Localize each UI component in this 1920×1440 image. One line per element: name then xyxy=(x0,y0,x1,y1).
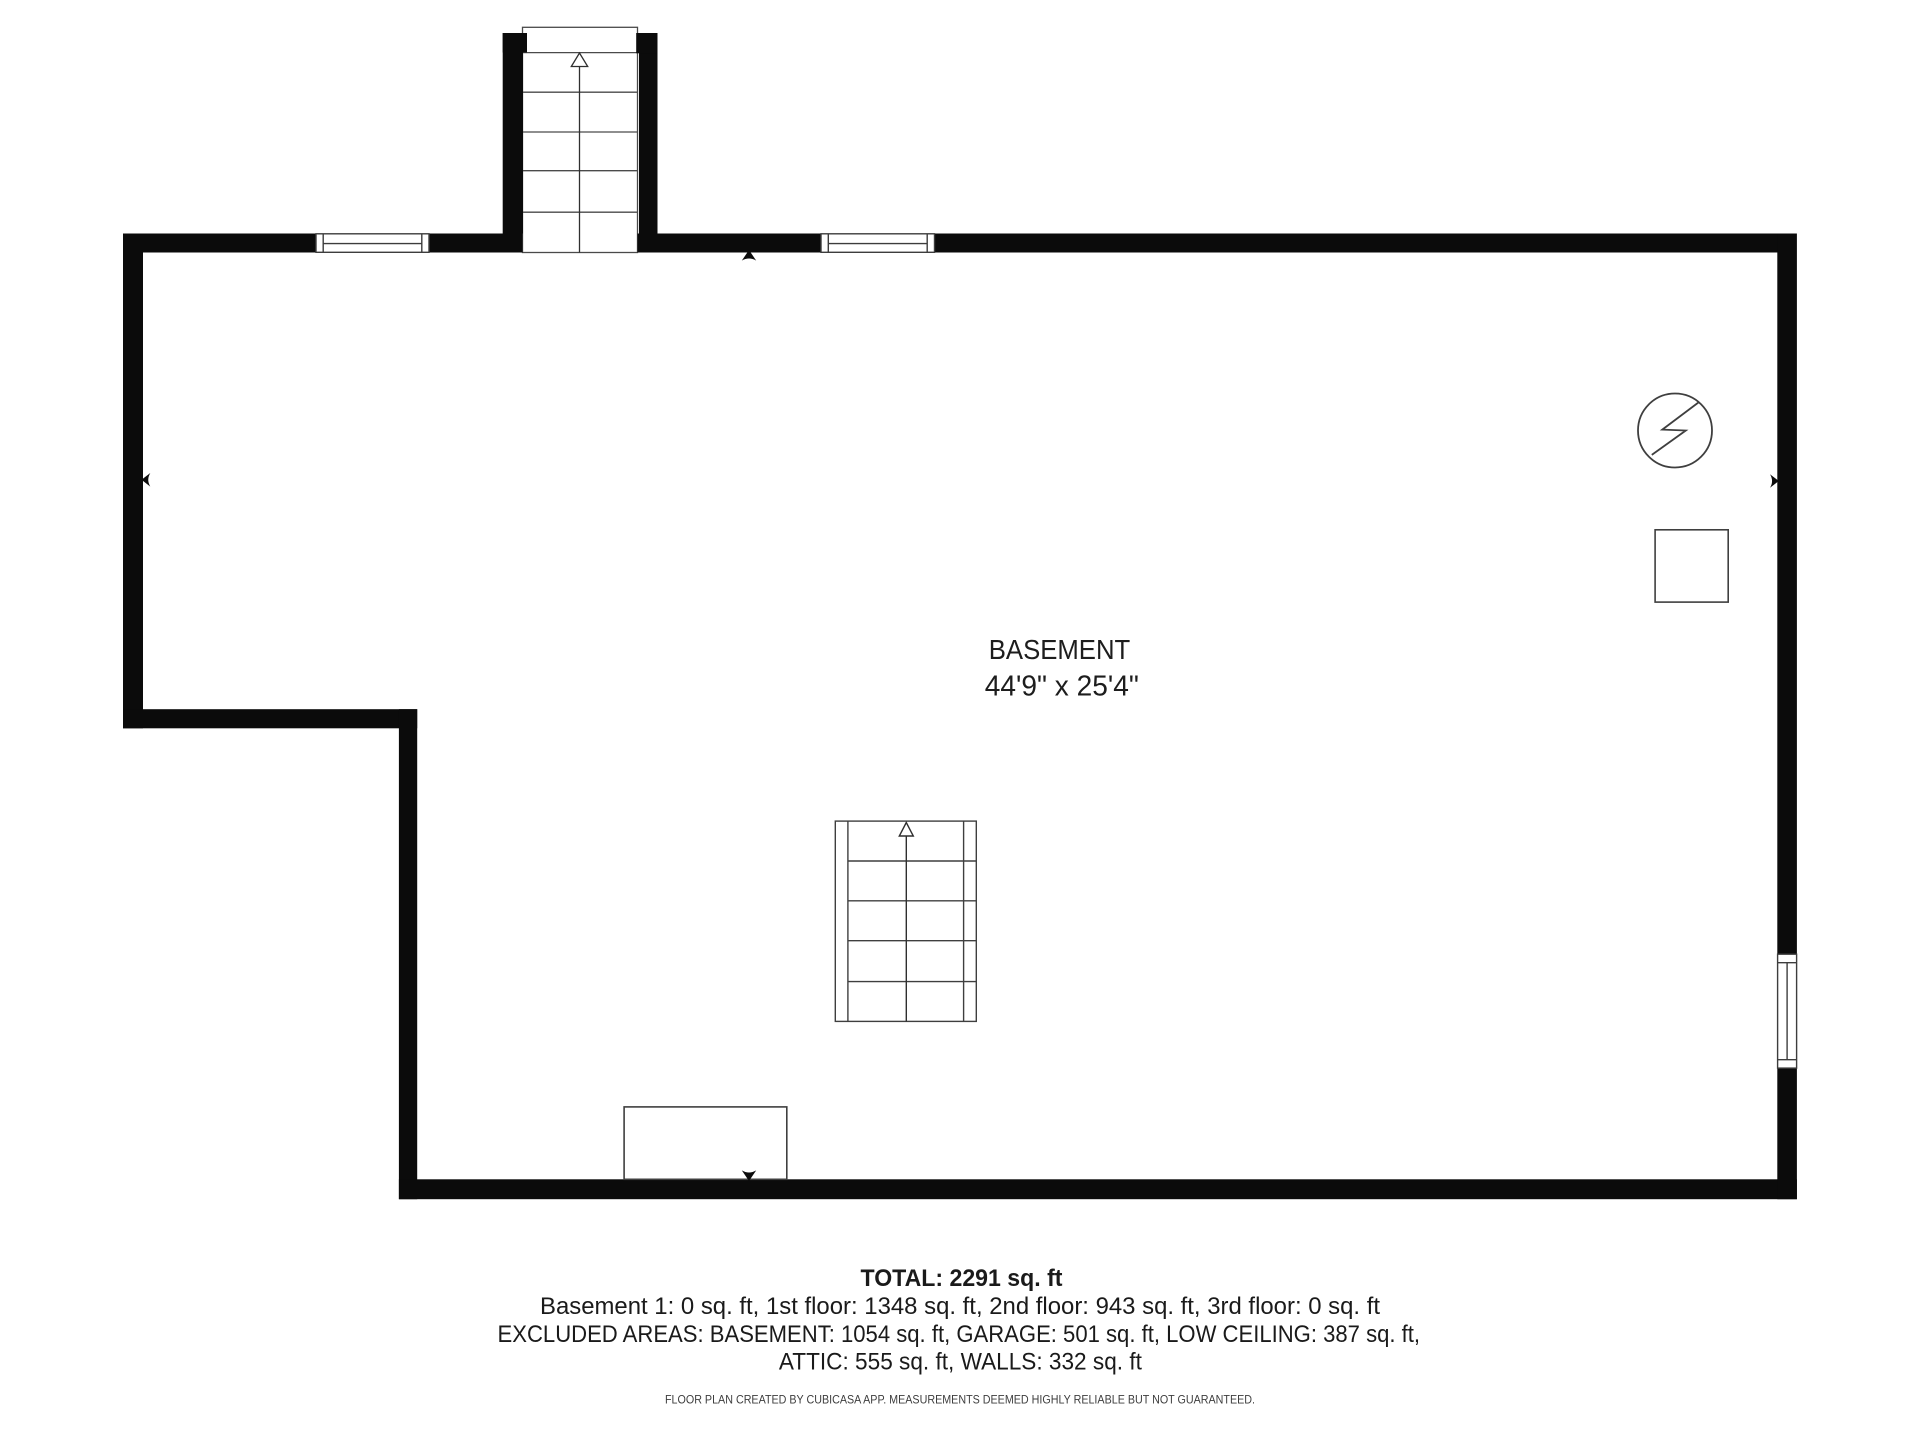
svg-text:TOTAL: 2291 sq. ft: TOTAL: 2291 sq. ft xyxy=(861,1265,1063,1292)
svg-text:BASEMENT: BASEMENT xyxy=(989,634,1131,665)
svg-text:44'9" x 25'4": 44'9" x 25'4" xyxy=(985,671,1139,703)
svg-text:ATTIC: 555 sq. ft, WALLS: 332: ATTIC: 555 sq. ft, WALLS: 332 sq. ft xyxy=(779,1349,1142,1376)
svg-text:Basement 1: 0 sq. ft, 1st floo: Basement 1: 0 sq. ft, 1st floor: 1348 sq… xyxy=(540,1293,1380,1320)
svg-text:FLOOR PLAN CREATED BY CUBICASA: FLOOR PLAN CREATED BY CUBICASA APP. MEAS… xyxy=(665,1395,1255,1407)
svg-text:EXCLUDED AREAS: BASEMENT: 1054: EXCLUDED AREAS: BASEMENT: 1054 sq. ft, G… xyxy=(498,1321,1421,1348)
